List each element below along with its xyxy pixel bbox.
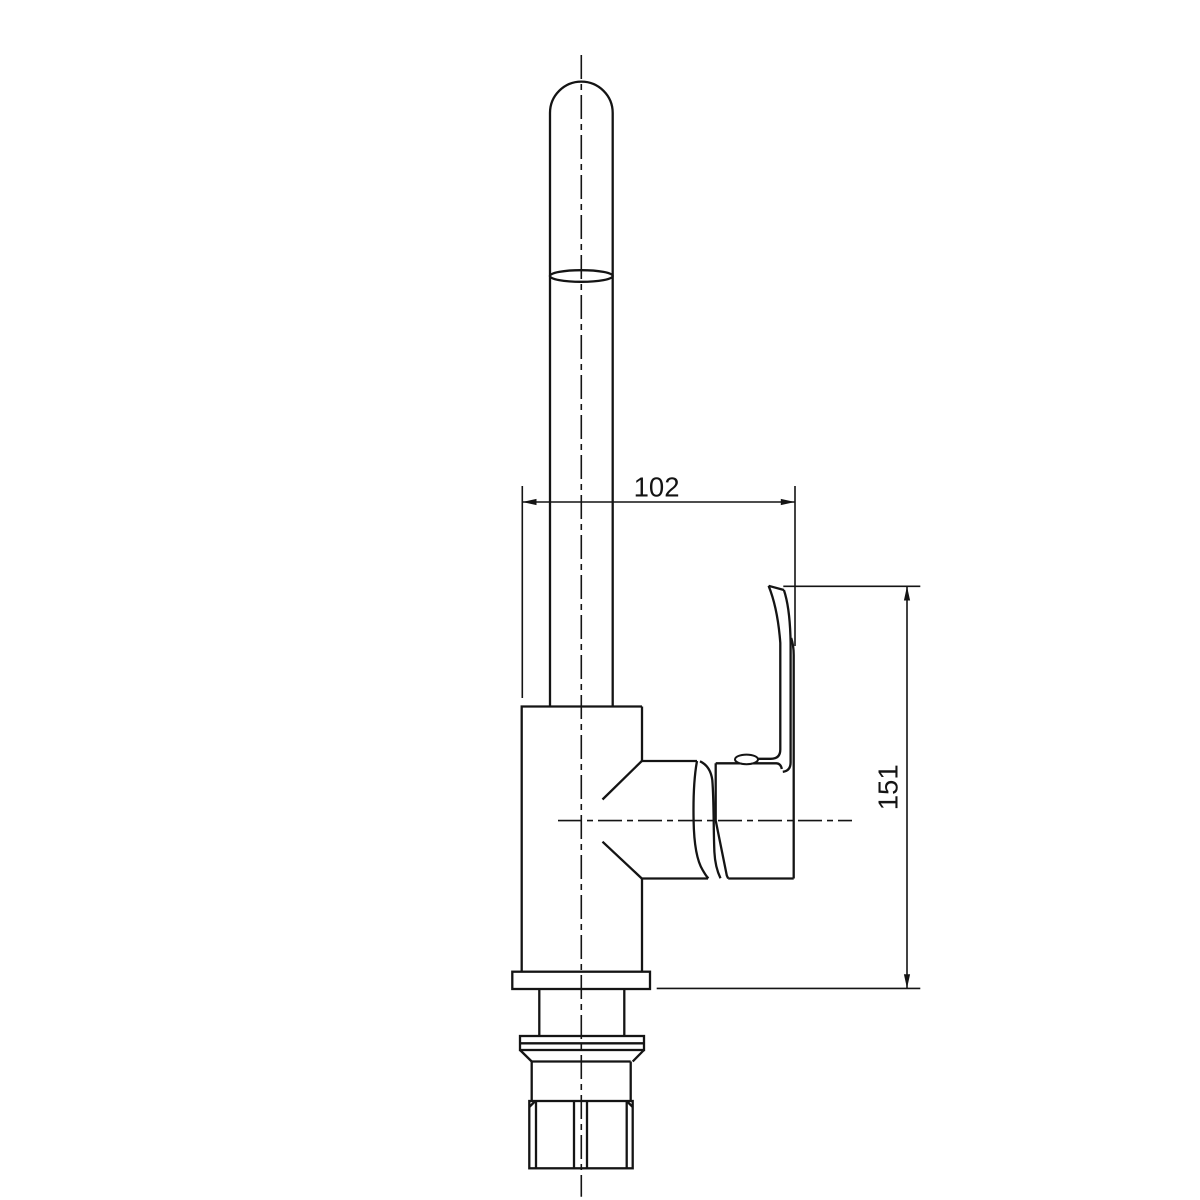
lever-outer-curve (750, 586, 781, 759)
dimension-height-151: 151 (657, 586, 921, 988)
arrowhead-left (522, 499, 536, 505)
arrowhead-right (781, 499, 795, 505)
body-bore-diagonal-upper (603, 761, 642, 800)
faucet-body (522, 707, 721, 972)
dimension-width-102: 102 (522, 472, 795, 699)
lever-inner-curve (783, 590, 791, 772)
handle-lever (735, 586, 791, 772)
dimension-width-label: 102 (634, 472, 680, 503)
body-right-edge-lower (642, 879, 708, 972)
body-right-edge-upper (642, 707, 697, 762)
arrowhead-bottom (904, 974, 910, 988)
washer-chamfer-right (633, 1050, 644, 1062)
centerlines (558, 55, 852, 1197)
arrowhead-top (904, 586, 910, 600)
body-bore-diagonal-lower (603, 842, 642, 879)
faucet-technical-drawing: 102 151 (0, 0, 1200, 1200)
drawing-canvas: 102 151 (0, 0, 1200, 1200)
washer-chamfer-left (520, 1050, 532, 1062)
handle-button-oval (735, 755, 758, 765)
cartridge-ball-profile-left (693, 761, 708, 878)
dimension-height-label: 151 (873, 764, 904, 810)
